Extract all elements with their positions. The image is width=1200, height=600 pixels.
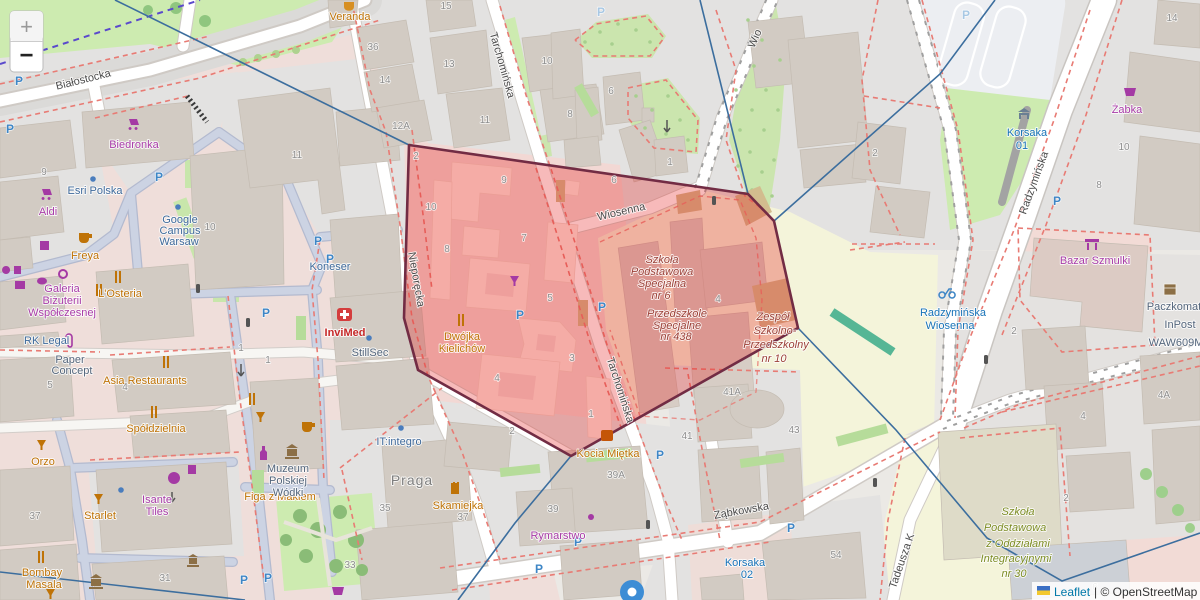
svg-text:41: 41 — [681, 431, 693, 442]
svg-text:Praga: Praga — [391, 472, 433, 488]
svg-text:StillSec: StillSec — [352, 347, 389, 359]
svg-text:Radzymińska: Radzymińska — [920, 307, 987, 319]
svg-text:2: 2 — [1063, 493, 1069, 504]
svg-text:Veranda: Veranda — [330, 11, 372, 23]
svg-text:Korsaka: Korsaka — [1007, 127, 1048, 139]
svg-text:Freya: Freya — [71, 250, 100, 262]
svg-text:4: 4 — [122, 382, 128, 393]
svg-text:Żabka: Żabka — [1112, 103, 1143, 116]
svg-text:| © OpenStreetMap: | © OpenStreetMap — [1094, 585, 1198, 599]
svg-text:Spółdzielnia: Spółdzielnia — [126, 423, 186, 435]
svg-text:2: 2 — [872, 148, 878, 159]
svg-text:+: + — [20, 14, 33, 39]
svg-text:z Oddziałami: z Oddziałami — [985, 538, 1050, 550]
svg-text:nr 438: nr 438 — [660, 331, 692, 343]
svg-text:P: P — [787, 521, 795, 535]
svg-text:6: 6 — [611, 175, 617, 186]
svg-text:11: 11 — [480, 115, 491, 126]
svg-text:Leaflet: Leaflet — [1054, 585, 1091, 599]
svg-text:nr 10: nr 10 — [761, 353, 787, 365]
svg-text:4: 4 — [1080, 411, 1086, 422]
svg-text:7: 7 — [521, 233, 527, 244]
svg-text:13: 13 — [443, 59, 455, 70]
svg-text:Przedszkolny: Przedszkolny — [743, 339, 810, 351]
svg-text:8: 8 — [567, 109, 573, 120]
svg-text:IT:integro: IT:integro — [376, 436, 421, 448]
svg-text:11: 11 — [292, 150, 303, 161]
svg-text:Concept: Concept — [52, 365, 93, 377]
svg-text:8: 8 — [1096, 180, 1102, 191]
svg-text:Rymarstwo: Rymarstwo — [530, 530, 585, 542]
svg-text:P: P — [535, 562, 543, 576]
svg-text:P: P — [262, 306, 270, 320]
svg-text:WAW609M: WAW609M — [1149, 337, 1200, 349]
svg-text:12A: 12A — [392, 121, 410, 132]
svg-text:Specjalna: Specjalna — [638, 278, 686, 290]
svg-text:01: 01 — [1016, 140, 1028, 152]
svg-text:Galeria: Galeria — [44, 283, 80, 295]
svg-text:Kocia Miętka: Kocia Miętka — [577, 448, 641, 460]
svg-text:P: P — [6, 122, 14, 136]
svg-text:Paczkomat: Paczkomat — [1147, 301, 1200, 313]
svg-text:Warsaw: Warsaw — [159, 236, 198, 248]
svg-text:P: P — [264, 571, 272, 585]
svg-text:Starlet: Starlet — [84, 510, 116, 522]
svg-text:9: 9 — [41, 167, 47, 178]
svg-text:2: 2 — [413, 151, 419, 162]
svg-text:Dwójka: Dwójka — [444, 331, 481, 343]
svg-text:4A: 4A — [1158, 390, 1171, 401]
svg-text:35: 35 — [379, 503, 391, 514]
svg-text:P: P — [240, 573, 248, 587]
svg-text:Szkoła: Szkoła — [645, 254, 678, 266]
svg-text:4: 4 — [715, 294, 721, 305]
svg-text:P: P — [155, 170, 163, 184]
svg-text:5: 5 — [47, 380, 53, 391]
svg-text:43: 43 — [788, 425, 800, 436]
svg-text:36: 36 — [367, 42, 379, 53]
svg-text:10: 10 — [1118, 142, 1130, 153]
svg-text:Szkoła: Szkoła — [1001, 506, 1034, 518]
svg-text:10: 10 — [204, 222, 216, 233]
svg-text:Koneser: Koneser — [310, 261, 351, 273]
svg-text:Muzeum: Muzeum — [267, 463, 309, 475]
svg-text:L'Osteria: L'Osteria — [98, 288, 143, 300]
svg-text:4: 4 — [494, 373, 500, 384]
svg-text:P: P — [598, 300, 606, 314]
svg-text:−: − — [19, 42, 33, 69]
svg-text:8: 8 — [444, 244, 450, 255]
svg-text:Wiosenna: Wiosenna — [926, 320, 976, 332]
svg-text:P: P — [597, 5, 605, 19]
svg-text:Orzo: Orzo — [31, 456, 55, 468]
svg-text:Przedszkole: Przedszkole — [647, 308, 707, 320]
svg-text:31: 31 — [159, 573, 171, 584]
svg-text:5: 5 — [547, 293, 553, 304]
svg-text:39: 39 — [547, 504, 559, 515]
svg-text:10: 10 — [425, 202, 437, 213]
svg-text:RK Legal: RK Legal — [24, 335, 69, 347]
svg-text:Podstawowa: Podstawowa — [631, 266, 693, 278]
svg-text:3: 3 — [569, 353, 575, 364]
svg-text:Bombay: Bombay — [22, 567, 63, 579]
svg-text:2: 2 — [1011, 326, 1017, 337]
svg-text:1: 1 — [588, 409, 594, 420]
svg-text:54: 54 — [830, 550, 842, 561]
svg-text:Aldi: Aldi — [39, 206, 57, 218]
svg-text:nr 30: nr 30 — [1001, 568, 1027, 580]
svg-text:39A: 39A — [607, 470, 625, 481]
svg-text:Korsaka: Korsaka — [725, 557, 766, 569]
svg-text:P: P — [962, 8, 970, 22]
svg-text:P: P — [314, 234, 322, 248]
svg-text:P: P — [1053, 194, 1061, 208]
svg-text:Masala: Masala — [26, 579, 62, 591]
svg-text:10: 10 — [541, 56, 553, 67]
svg-text:9: 9 — [501, 175, 507, 186]
svg-text:2: 2 — [509, 426, 515, 437]
svg-text:Tiles: Tiles — [146, 506, 169, 518]
svg-text:Kielichów: Kielichów — [439, 343, 486, 355]
svg-text:Biedronka: Biedronka — [109, 139, 159, 151]
svg-text:Isante: Isante — [142, 494, 172, 506]
svg-text:1: 1 — [667, 157, 673, 168]
svg-text:37: 37 — [29, 511, 41, 522]
svg-text:14: 14 — [1166, 13, 1178, 24]
svg-text:Asia Restaurants: Asia Restaurants — [103, 375, 187, 387]
svg-text:InviMed: InviMed — [325, 327, 366, 339]
svg-text:Skamiejka: Skamiejka — [433, 500, 485, 512]
svg-text:Zespół: Zespół — [755, 311, 790, 323]
svg-text:nr 6: nr 6 — [652, 290, 672, 302]
svg-text:P: P — [516, 308, 524, 322]
svg-text:1: 1 — [238, 343, 244, 354]
svg-text:P: P — [656, 448, 664, 462]
svg-text:P: P — [15, 74, 23, 88]
svg-text:02: 02 — [741, 569, 753, 581]
svg-text:37: 37 — [457, 512, 469, 523]
svg-text:Współczesnej: Współczesnej — [28, 307, 96, 319]
svg-text:15: 15 — [440, 1, 452, 12]
svg-text:14: 14 — [379, 75, 391, 86]
svg-text:Wódki: Wódki — [273, 487, 304, 499]
svg-text:Esri Polska: Esri Polska — [67, 185, 123, 197]
svg-text:33: 33 — [344, 560, 356, 571]
svg-text:Bazar Szmulki: Bazar Szmulki — [1060, 255, 1130, 267]
svg-text:6: 6 — [608, 86, 614, 97]
svg-text:Podstawowa: Podstawowa — [984, 522, 1046, 534]
svg-text:1: 1 — [265, 355, 271, 366]
svg-text:Biżuterii: Biżuterii — [42, 295, 81, 307]
svg-text:Polskiej: Polskiej — [269, 475, 307, 487]
svg-text:41A: 41A — [723, 387, 741, 398]
svg-text:Integracyjnymi: Integracyjnymi — [981, 553, 1052, 565]
svg-text:InPost: InPost — [1164, 319, 1195, 331]
svg-text:Szkolno-: Szkolno- — [754, 325, 797, 337]
